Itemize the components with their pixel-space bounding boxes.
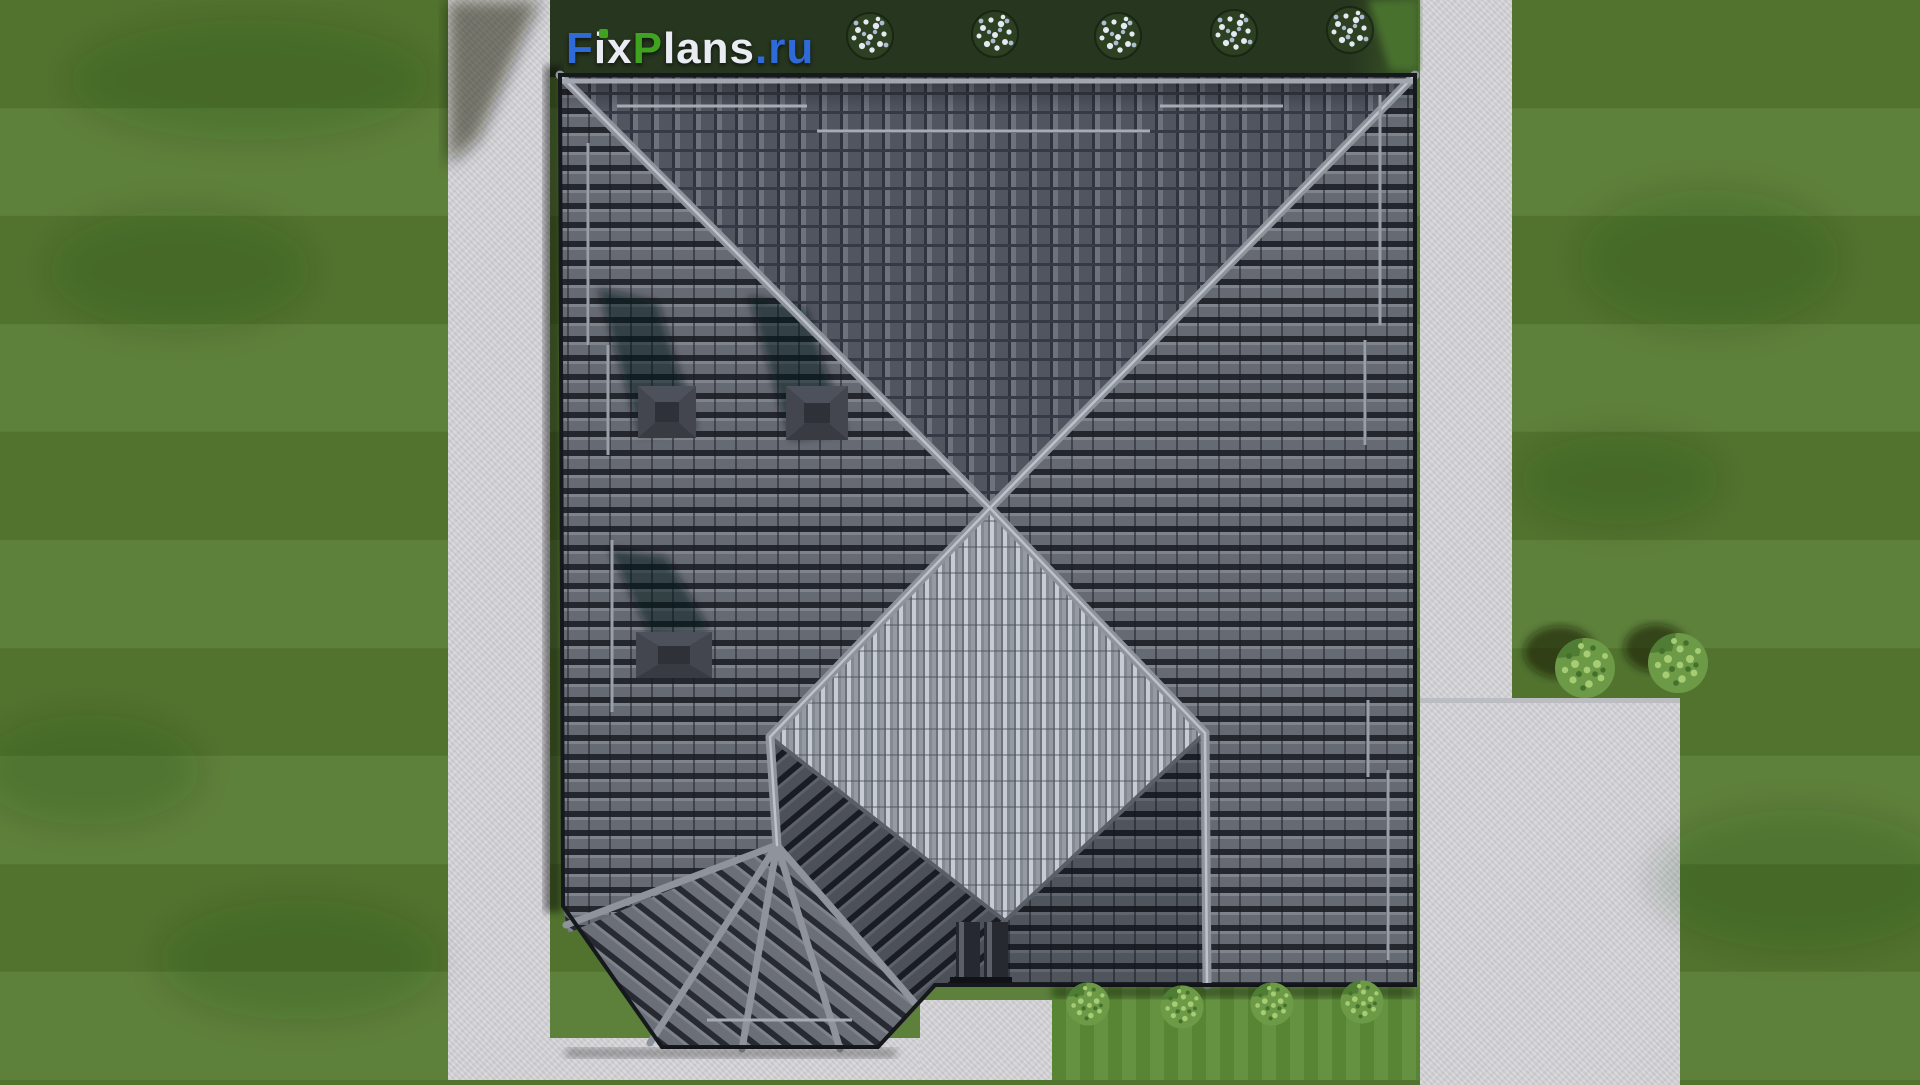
roof-porch-fan: [563, 845, 915, 1047]
logo-segment-p: P: [633, 24, 663, 73]
concrete-area-bottom-center: [920, 1000, 1052, 1080]
chimney-shadows: [598, 288, 847, 635]
chimney-caps: [636, 386, 848, 678]
chimney-cap-3: [636, 632, 712, 678]
roof-slope-south-left: [770, 737, 1005, 1003]
concrete-patio-bottom-right: [1420, 698, 1680, 1085]
roof-valleys: [770, 733, 1205, 921]
grass-strip-bottom: [1052, 978, 1418, 1080]
roof-outline: [560, 75, 1415, 1047]
chimney-flue-pipes: [950, 922, 1012, 986]
bushes-right: [1524, 624, 1708, 698]
roof-pipes-vertical: [588, 95, 1388, 960]
roof-slope-north: [560, 75, 1415, 508]
concrete-path-left: [448, 0, 550, 1080]
aerial-roof-plan-render: { "watermark": { "segments": [ {"text": …: [0, 0, 1920, 1080]
roof: [560, 75, 1415, 1049]
logo-i-dot: [599, 29, 608, 38]
concrete-path-right: [1420, 0, 1512, 703]
roof-slope-west: [560, 75, 990, 933]
roof-slope-south-right: [1005, 733, 1207, 985]
roof-slope-east: [990, 75, 1415, 985]
chimney-cap-1: [638, 386, 696, 438]
logo-segment-ru: .ru: [755, 24, 814, 73]
snow-guard-bars: [617, 106, 1283, 1020]
roof-ridges: [560, 75, 1415, 1049]
logo-segment-f: F: [566, 24, 594, 73]
fixplans-watermark-logo: FixPlans.ru: [566, 26, 814, 72]
roof-pyramid-diamond: [770, 508, 1205, 921]
chimney-cap-2: [786, 386, 848, 440]
logo-segment-lans: lans: [663, 24, 755, 73]
